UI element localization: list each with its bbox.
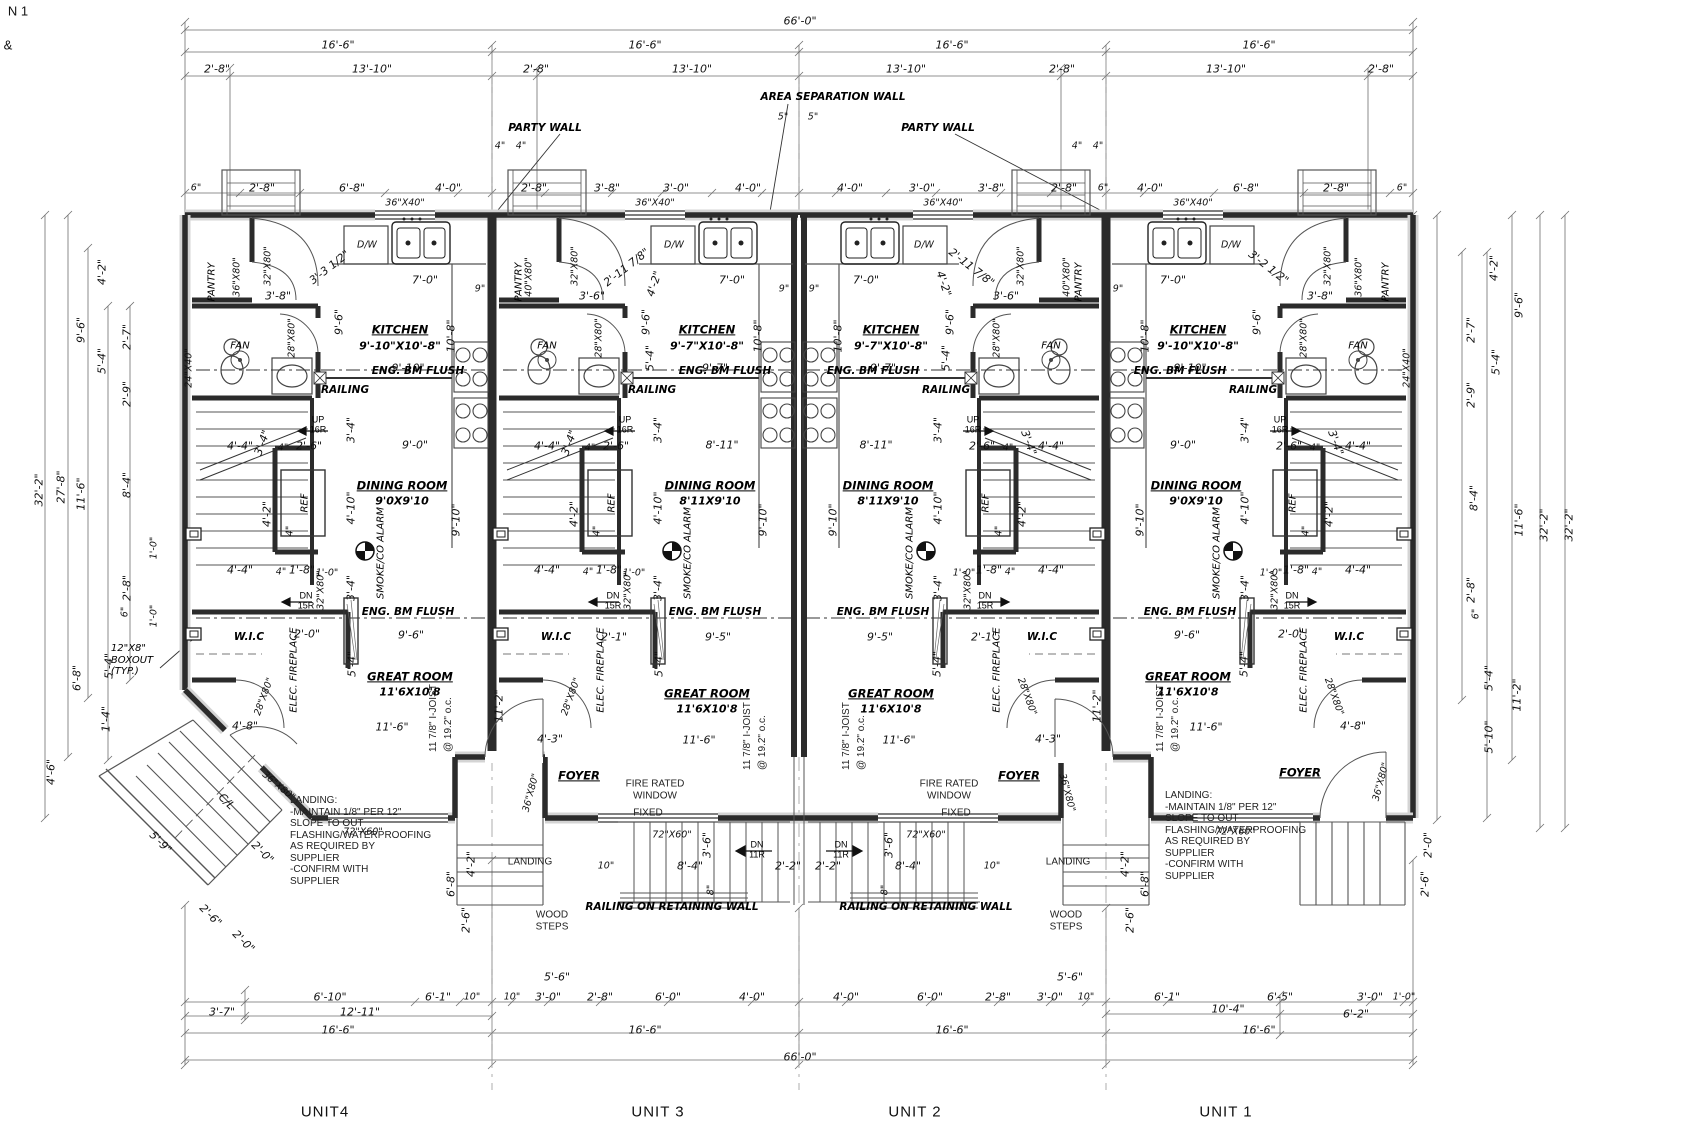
dimension-label: 4'-2" [569,501,582,527]
callout-label: ENG. BM FLUSH [1134,365,1227,377]
room-size-label: 9'-10"X10'-8" [359,341,441,354]
room-label: GREAT ROOM [1145,670,1231,683]
dimension-label: 32'-2" [1539,508,1552,541]
opening-size-label: 32"X80" [1324,246,1335,285]
dimension-label: 12'-11" [340,1007,380,1020]
dimension-label: 2'-8" [1466,577,1479,603]
dimension-label: 3'-6" [702,832,715,858]
dimension-label: 8'-4" [895,861,921,874]
dimension-label: 1'-8" [289,565,315,578]
dimension-label: 9'-6" [641,309,654,335]
dimension-label: 9" [779,285,789,296]
opening-size-label: 40"X80" [525,257,536,296]
dimension-label: 3'-7" [209,1007,235,1020]
unit-label: UNIT 2 [888,1103,941,1120]
dimension-label: 3'-0" [663,183,689,196]
note-text: LANDING: -MAINTAIN 1/8" PER 12" SLOPE TO… [1165,790,1306,882]
dimension-label: 3'-8" [265,291,291,304]
stair-direction-label: UP 16R [617,415,634,436]
dimension-label: 9'-6" [76,317,89,343]
room-size-label: 11'6X10'8 [676,704,737,717]
dimension-label: 5'-4" [1239,651,1252,677]
dimension-label: 11'-2" [494,689,507,722]
dimension-label: 8'-4" [677,861,703,874]
dimension-label: 4'-10" [1240,491,1253,524]
dimension-label: 5'-4" [97,348,110,374]
callout-label: ENG. BM FLUSH [362,606,455,618]
opening-size-label: 72"X60" [652,831,691,842]
fixture-label: ELEC. FIREPLACE [1298,627,1310,712]
dimension-label: 9'-0" [1170,440,1196,453]
dimension-label: 3'-6" [993,291,1019,304]
dimension-label: 10'-8" [1140,319,1153,352]
dimension-label: 4'-2" [262,501,275,527]
dimension-label: 16'-6" [628,1025,661,1038]
dimension-label: 7'-0" [853,275,879,288]
dimension-label: 9" [475,285,485,296]
callout-label: RAILING [922,384,970,396]
dimension-label: 9'-10" [1135,503,1148,536]
room-label: FOYER [1279,766,1321,779]
room-label: GREAT ROOM [848,687,934,700]
dimension-label: 4'-2" [1489,255,1502,281]
stair-direction-label: UP 16R [1272,415,1289,436]
dimension-label: 6'-10" [313,992,346,1005]
dimension-label: 3'-0" [535,992,561,1005]
dimension-label: 4" [1302,526,1313,536]
opening-size-label: 28"X80" [595,318,606,357]
dimension-label: 6'-8" [339,183,365,196]
dimension-label: 11'-6" [1189,722,1222,735]
dimension-label: 4'-3" [1035,734,1061,747]
dimension-label: 6'-0" [655,992,681,1005]
fixture-label: PANTRY [1380,262,1392,301]
room-size-label: 11'6X10'8 [1157,687,1218,700]
fixture-label: REF [1287,493,1299,512]
dimension-label: 11'-6" [682,735,715,748]
dimension-label: 4'-10" [933,491,946,524]
dimension-label: 4'-2" [466,851,479,877]
dimension-label: 6'-8" [72,665,85,691]
dimension-label: 2'-8" [985,992,1011,1005]
dimension-label: 3'-4" [933,575,946,601]
dimension-label: 2'-6" [461,907,474,933]
dimension-label: 8" [881,885,892,895]
dimension-label: 32'-2" [34,473,47,506]
dimension-label: 2'-9" [1466,382,1479,408]
unit-label: UNIT 3 [631,1103,684,1120]
dimension-label: 2'-9" [122,381,135,407]
fixture-label: FAN [537,340,557,352]
room-label: KITCHEN [372,323,429,336]
opening-size-label: 32"X80" [317,570,328,609]
room-label: DINING ROOM [357,479,448,492]
dimension-label: 13'-10" [886,64,926,77]
dimension-label: 9'-6" [1252,309,1265,335]
dimension-label: 3'-8" [594,183,620,196]
dimension-label: 2'-0" [229,928,256,955]
room-size-label: 9'-7"X10'-8" [854,341,928,354]
dimension-label: 16'-6" [935,1025,968,1038]
room-size-label: 9'-7"X10'-8" [670,341,744,354]
dimension-label: 16'-6" [628,40,661,53]
dimension-label: 4'-4" [227,565,253,578]
annotation-layer: N 1&66'-0"16'-6"16'-6"16'-6"16'-6"2'-8"1… [0,0,1706,1123]
dimension-label: 10" [464,993,480,1004]
dimension-label: 4'-0" [435,183,461,196]
dimension-label: 11'-6" [882,735,915,748]
room-label: GREAT ROOM [664,687,750,700]
dimension-label: C/L [215,791,236,812]
dimension-label: 9'-0" [402,440,428,453]
note-text: 11 7/8" I-JOIST [841,702,853,770]
dimension-label: 6'-1" [1154,992,1180,1005]
sheet-text: & [4,39,13,54]
dimension-label: 3'-4" [1325,429,1346,458]
dimension-label: 2'-8" [1368,64,1394,77]
fixture-label: SMOKE/CO ALARM [682,507,694,599]
room-label: W.I.C [234,631,264,643]
dimension-label: 2'-8" [521,183,547,196]
dimension-label: 2'-6" [1276,441,1302,454]
dimension-label: 4" [995,526,1006,536]
unit-label: UNIT4 [301,1103,349,1120]
opening-size-label: 32"X80" [571,246,582,285]
opening-size-label: 36"X80" [1372,762,1393,803]
note-text: 11 7/8" I-JOIST [1155,684,1167,752]
dimension-label: 4" [286,526,297,536]
dimension-label: 10" [1078,993,1094,1004]
dimension-label: 3'-4" [253,429,274,458]
note-text: FIRE RATED WINDOW [920,779,979,802]
dimension-label: 2'-8" [204,64,230,77]
dimension-label: 2'-8" [587,992,613,1005]
room-label: DINING ROOM [1151,479,1242,492]
dimension-label: 3'-4" [346,575,359,601]
opening-size-label: 28"X80" [993,318,1004,357]
stair-direction-label: DN 15R [977,591,994,612]
dimension-label: 4'-2" [1120,851,1133,877]
dimension-label: 4" [1005,568,1015,579]
dimension-label: 4" [1310,444,1320,455]
dimension-label: 2'-6" [969,441,995,454]
dimension-label: 4'-0" [739,992,765,1005]
dimension-label: 9'-6" [1174,630,1200,643]
dimension-label: 5'-4" [654,651,667,677]
dimension-label: 9'-5" [705,632,731,645]
dimension-label: 4" [583,568,593,579]
note-text: WOOD STEPS [536,910,569,933]
fixture-label: FAN [1348,340,1368,352]
dimension-label: 3'-3 1/2" [307,248,352,287]
dimension-label: 4'-4" [1345,441,1371,454]
dimension-label: 27'-8" [56,470,69,503]
fixture-label: ELEC. FIREPLACE [288,627,300,712]
dimension-label: 9'-6" [398,630,424,643]
note-text: 12"X8" BOXOUT (TYP.) [111,643,153,678]
opening-size-label: 28"X80" [1321,677,1345,718]
dimension-label: 10'-4" [1211,1004,1244,1017]
opening-size-label: D/W [1221,241,1241,252]
dimension-label: 6" [1098,184,1108,195]
callout-label: PARTY WALL [508,122,582,134]
dimension-label: 5'-6" [544,972,570,985]
dimension-label: 1'-0" [150,537,161,560]
dimension-label: 9'-10" [451,503,464,536]
dimension-label: 4'-2" [1017,501,1030,527]
opening-size-label: 24"X40" [185,348,196,387]
dimension-label: 2'-8" [1049,64,1075,77]
dimension-label: 6'-5" [1267,992,1293,1005]
dimension-label: 16'-6" [321,1025,354,1038]
floor-plan-sheet: N 1&66'-0"16'-6"16'-6"16'-6"16'-6"2'-8"1… [0,0,1706,1123]
opening-size-label: 32"X80" [264,246,275,285]
dimension-label: 2'-11 7/8" [946,246,997,289]
dimension-label: 5'-4" [347,651,360,677]
dimension-label: 4" [1003,444,1013,455]
dimension-label: 4'-10" [346,491,359,524]
room-label: W.I.C [1334,631,1364,643]
opening-size-label: 72"X60" [906,831,945,842]
dimension-label: 5'-4" [941,345,954,371]
dimension-label: 1'-8" [596,565,622,578]
fixture-label: SMOKE/CO ALARM [1211,507,1223,599]
fixture-label: SMOKE/CO ALARM [904,507,916,599]
room-label: FOYER [998,769,1040,782]
dimension-label: 9'-6" [1514,292,1527,318]
dimension-label: 3'-2 1/2" [1245,248,1290,287]
stair-direction-label: UP 16R [965,415,982,436]
dimension-label: 4'-0" [735,183,761,196]
dimension-label: 2'-0" [248,839,275,866]
dimension-label: 4'-10" [653,491,666,524]
dimension-label: 1'-4" [101,706,114,732]
opening-size-label: 32"X80" [624,570,635,609]
dimension-label: 3'-6" [884,832,897,858]
dimension-label: 4'-4" [1345,565,1371,578]
opening-size-label: 28"X80" [253,677,277,718]
dimension-label: 9" [809,285,819,296]
opening-size-label: 36"X40" [385,199,424,210]
dimension-label: 6" [1397,184,1407,195]
note-text: 11 7/8" I-JOIST [428,684,440,752]
room-label: GREAT ROOM [367,670,453,683]
dimension-label: 6'-8" [1140,871,1153,897]
fixture-label: SMOKE/CO ALARM [375,507,387,599]
dimension-label: 2'-6" [296,441,322,454]
dimension-label: 10'-8" [446,319,459,352]
callout-label: ENG. BM FLUSH [679,365,772,377]
dimension-label: 13'-10" [352,64,392,77]
callout-label: ENG. BM FLUSH [827,365,920,377]
opening-size-label: 36"X80" [233,257,244,296]
dimension-label: 3'-0" [1357,992,1383,1005]
dimension-label: 3'-8" [978,183,1004,196]
room-label: W.I.C [1027,631,1057,643]
dimension-label: 3'-0" [909,183,935,196]
dimension-label: 9'-5" [867,632,893,645]
opening-size-label: D/W [914,241,934,252]
dimension-label: 4'-6" [46,759,59,785]
dimension-label: 4'-3" [537,734,563,747]
dimension-label: 5'-4" [932,651,945,677]
dimension-label: 11'-6" [375,722,408,735]
dimension-label: 16'-6" [935,40,968,53]
fixture-label: REF [980,493,992,512]
dimension-label: 13'-10" [1206,64,1246,77]
dimension-label: 3'-4" [1018,429,1039,458]
dimension-label: 5'-4" [1484,665,1497,691]
opening-size-label: 28"X80" [288,318,299,357]
dimension-label: 9'-10" [828,503,841,536]
dimension-label: 2'-8" [1051,183,1077,196]
stair-direction-label: DN 15R [1284,591,1301,612]
dimension-label: 3'-4" [560,429,581,458]
dimension-label: 4'-8" [1340,721,1366,734]
opening-size-label: 28"X80" [1300,318,1311,357]
dimension-label: 13'-10" [672,64,712,77]
callout-label: ENG. BM FLUSH [669,606,762,618]
opening-size-label: 32"X80" [1017,246,1028,285]
note-text: FIRE RATED WINDOW [626,779,685,802]
callout-label: AREA SEPARATION WALL [760,91,905,103]
dimension-label: 16'-6" [1242,1025,1275,1038]
callout-label: PARTY WALL [901,122,975,134]
dimension-label: 4'-2" [645,270,665,299]
dimension-label: 16'-6" [321,40,354,53]
room-label: KITCHEN [863,323,920,336]
note-text: FIXED [633,807,662,819]
dimension-label: 4'-0" [1137,183,1163,196]
dimension-label: 3'-4" [1240,575,1253,601]
dimension-label: 4" [516,142,526,153]
dimension-label: 4'-4" [1038,565,1064,578]
dimension-label: 6'-2" [1343,1009,1369,1022]
dimension-label: 2'-6" [603,441,629,454]
note-text: @ 19.2" o.c. [757,715,769,770]
dimension-label: 2'-8" [1323,183,1349,196]
dimension-label: 4" [1093,142,1103,153]
dimension-label: 11'-2" [1092,689,1105,722]
opening-size-label: 28"X80" [1014,677,1038,718]
dimension-label: 8" [707,885,718,895]
dimension-label: 4" [276,568,286,579]
dimension-label: 2'-6" [1420,871,1433,897]
room-label: W.I.C [541,631,571,643]
dimension-label: 5'-4" [1491,349,1504,375]
note-text: 11 7/8" I-JOIST [742,702,754,770]
dimension-label: 1'-0" [1393,993,1416,1004]
dimension-label: 66'-0" [783,1052,816,1065]
dimension-label: 2'-0" [1423,832,1436,858]
fixture-label: FAN [230,340,250,352]
note-text: LANDING [508,856,552,868]
dimension-label: 4'-8" [232,721,258,734]
opening-size-label: 28"X80" [560,677,584,718]
note-text: FIXED [941,807,970,819]
opening-size-label: 36"X40" [923,199,962,210]
dimension-label: 3'-0" [1037,992,1063,1005]
dimension-label: 5'-4" [645,345,658,371]
dimension-label: 2'-8" [523,64,549,77]
note-text: LANDING [1046,856,1090,868]
dimension-label: 2'-6" [196,902,223,929]
callout-label: ENG. BM FLUSH [372,365,465,377]
dimension-label: 2'-7" [1466,317,1479,343]
dimension-label: 4" [278,444,288,455]
dimension-label: 4" [1072,142,1082,153]
dimension-label: 32'-2" [1564,508,1577,541]
dimension-label: 2'-2" [815,861,841,874]
dimension-label: 6'-8" [1233,183,1259,196]
dimension-label: 7'-0" [719,275,745,288]
room-size-label: 11'6X10'8 [860,704,921,717]
opening-size-label: D/W [664,241,684,252]
dimension-label: 4" [585,444,595,455]
dimension-label: 66'-0" [783,16,816,29]
room-label: KITCHEN [679,323,736,336]
note-text: @ 19.2" o.c. [1170,697,1182,752]
dimension-label: 7'-0" [1160,275,1186,288]
dimension-label: 9'-6" [334,309,347,335]
dimension-label: 11'-6" [76,477,89,510]
dimension-label: 6" [121,607,132,617]
dimension-label: 2'-8" [122,575,135,601]
dimension-label: 1'-0" [150,605,161,628]
dimension-label: 3'-4" [653,575,666,601]
dimension-label: 8'-4" [122,472,135,498]
dimension-label: 6'-1" [425,992,451,1005]
dimension-label: 2'-11 7/8" [602,246,653,289]
callout-label: RAILING ON RETAINING WALL [839,901,1012,913]
dimension-label: 9'-10" [758,503,771,536]
dimension-label: 5'-6" [1057,972,1083,985]
dimension-label: 4" [1312,568,1322,579]
opening-size-label: 36"X40" [635,199,674,210]
callout-label: RAILING [321,384,369,396]
dimension-label: 8'-11" [705,440,738,453]
dimension-label: 4'-0" [833,992,859,1005]
dimension-label: 4'-4" [534,565,560,578]
unit-label: UNIT 1 [1199,1103,1252,1120]
dimension-label: 6" [1472,609,1483,619]
note-text: @ 19.2" o.c. [443,697,455,752]
room-label: DINING ROOM [665,479,756,492]
dimension-label: 10'-8" [753,319,766,352]
dimension-label: 4" [495,142,505,153]
note-text: @ 19.2" o.c. [856,715,868,770]
dimension-label: 8'-4" [1469,485,1482,511]
dimension-label: 5'-9" [146,829,173,856]
opening-size-label: 36"X40" [1173,199,1212,210]
dimension-label: 4" [593,526,604,536]
stair-direction-label: UP 16R [310,415,327,436]
sheet-text: N 1 [8,5,28,20]
opening-size-label: D/W [357,241,377,252]
dimension-label: 2'-8" [249,183,275,196]
dimension-label: 1'-8" [1283,565,1309,578]
dimension-label: 3'-4" [933,417,946,443]
room-size-label: 9'-10"X10'-8" [1157,341,1239,354]
opening-size-label: 36"X80" [1355,257,1366,296]
dimension-label: 5" [778,113,788,124]
note-text: LANDING: -MAINTAIN 1/8" PER 12" SLOPE TO… [290,795,431,887]
dimension-label: 5'-10" [1484,720,1497,753]
dimension-label: 10" [984,862,1000,873]
callout-label: RAILING [1229,384,1277,396]
dimension-label: 10" [504,993,520,1004]
opening-size-label: 32"X80" [1271,570,1282,609]
